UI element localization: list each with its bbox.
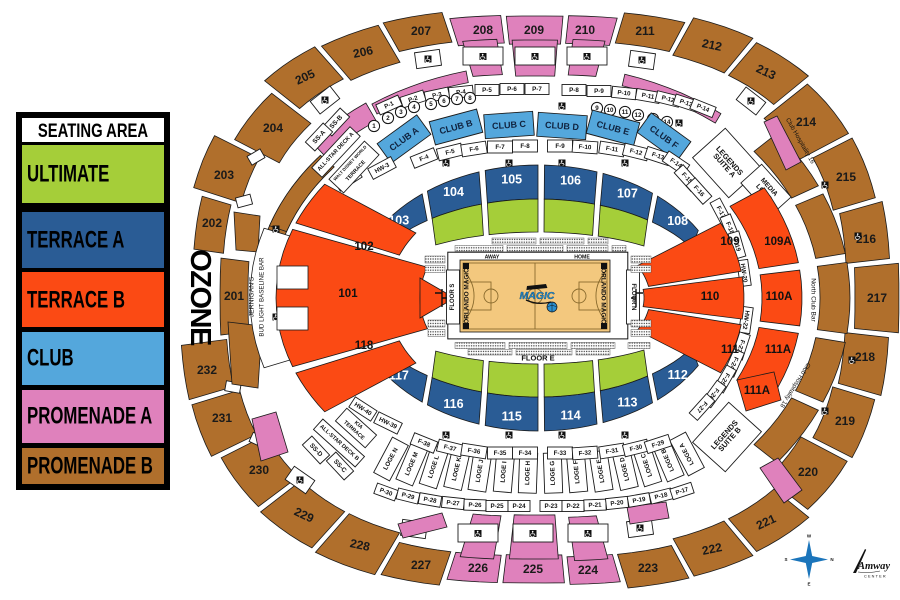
svg-text:TERRACE B: TERRACE B xyxy=(27,287,125,314)
svg-text:215: 215 xyxy=(836,170,856,184)
svg-text:P-8: P-8 xyxy=(569,87,579,94)
svg-text:F-35: F-35 xyxy=(494,450,507,457)
svg-text:F-9: F-9 xyxy=(555,143,565,150)
svg-text:HOME: HOME xyxy=(574,255,590,261)
svg-text:113: 113 xyxy=(617,395,637,409)
svg-text:MAGIC: MAGIC xyxy=(520,290,555,302)
svg-text:P-20: P-20 xyxy=(610,499,624,507)
svg-text:12: 12 xyxy=(635,112,642,119)
svg-text:108: 108 xyxy=(667,214,688,228)
svg-text:203: 203 xyxy=(214,168,234,182)
svg-text:202: 202 xyxy=(202,216,222,230)
svg-text:S: S xyxy=(784,557,787,562)
svg-text:207: 207 xyxy=(411,24,431,38)
svg-text:P-9: P-9 xyxy=(594,88,604,95)
svg-text:FLOOR N: FLOOR N xyxy=(630,284,636,311)
svg-text:109: 109 xyxy=(720,236,739,248)
svg-text:F-8: F-8 xyxy=(520,143,530,150)
svg-text:North Club Bar: North Club Bar xyxy=(810,278,817,322)
svg-text:ULTIMATE: ULTIMATE xyxy=(27,161,109,188)
svg-text:104: 104 xyxy=(443,185,464,199)
svg-text:115: 115 xyxy=(502,409,522,423)
svg-text:224: 224 xyxy=(578,563,598,577)
svg-text:ORLANDO MAGIC: ORLANDO MAGIC xyxy=(600,268,607,324)
svg-text:7: 7 xyxy=(455,96,459,103)
svg-text:6: 6 xyxy=(442,98,446,105)
svg-text:109A: 109A xyxy=(764,236,792,248)
svg-text:227: 227 xyxy=(411,558,431,572)
svg-text:P-22: P-22 xyxy=(566,503,580,510)
svg-text:3: 3 xyxy=(399,109,403,116)
svg-text:217: 217 xyxy=(867,291,887,305)
svg-text:P-6: P-6 xyxy=(507,86,517,93)
svg-text:F-7: F-7 xyxy=(495,144,505,151)
svg-text:209: 209 xyxy=(524,23,544,37)
svg-text:F-10: F-10 xyxy=(578,143,592,151)
svg-text:201: 201 xyxy=(224,289,244,303)
svg-text:CENTER: CENTER xyxy=(864,575,887,579)
svg-text:223: 223 xyxy=(638,561,658,575)
svg-text:ORLANDO MAGIC: ORLANDO MAGIC xyxy=(464,268,471,324)
svg-text:P-7: P-7 xyxy=(532,86,542,93)
svg-text:P-25: P-25 xyxy=(490,503,504,510)
svg-text:230: 230 xyxy=(249,463,269,477)
svg-text:214: 214 xyxy=(796,115,816,129)
svg-text:110: 110 xyxy=(701,291,720,303)
svg-text:110A: 110A xyxy=(766,291,793,303)
svg-text:P-27: P-27 xyxy=(446,499,460,507)
svg-text:P-23: P-23 xyxy=(544,503,558,510)
svg-text:LOGE G: LOGE G xyxy=(549,461,557,486)
svg-text:118: 118 xyxy=(355,340,374,352)
svg-text:225: 225 xyxy=(523,562,543,576)
svg-text:FLOOR S: FLOOR S xyxy=(450,284,456,311)
svg-text:LOGE H: LOGE H xyxy=(524,460,532,485)
svg-text:111: 111 xyxy=(721,344,740,356)
svg-text:CLUB: CLUB xyxy=(27,345,74,372)
svg-text:1: 1 xyxy=(372,123,376,130)
svg-text:219: 219 xyxy=(835,414,855,428)
svg-text:TERRACE A: TERRACE A xyxy=(27,227,124,254)
svg-text:2: 2 xyxy=(386,115,390,122)
svg-text:OZONE: OZONE xyxy=(184,249,216,346)
svg-text:106: 106 xyxy=(560,173,581,187)
svg-text:11: 11 xyxy=(622,109,629,116)
svg-text:Amway: Amway xyxy=(857,561,890,572)
svg-text:P-21: P-21 xyxy=(588,502,602,509)
svg-text:SEATING AREA: SEATING AREA xyxy=(38,120,148,141)
svg-text:P-26: P-26 xyxy=(468,502,482,509)
svg-text:F-34: F-34 xyxy=(519,450,532,457)
svg-text:208: 208 xyxy=(473,23,493,37)
svg-text:112: 112 xyxy=(668,368,688,382)
svg-text:P-5: P-5 xyxy=(482,87,492,94)
svg-text:220: 220 xyxy=(798,465,818,479)
svg-text:N: N xyxy=(830,557,833,562)
svg-text:102: 102 xyxy=(354,241,373,253)
svg-text:231: 231 xyxy=(212,411,232,425)
svg-text:111A: 111A xyxy=(744,385,770,397)
svg-text:8: 8 xyxy=(468,95,472,102)
svg-text:4: 4 xyxy=(412,104,416,111)
svg-text:10: 10 xyxy=(607,107,614,114)
svg-text:218: 218 xyxy=(855,350,875,364)
svg-text:F-33: F-33 xyxy=(554,450,567,457)
svg-text:211: 211 xyxy=(635,24,655,38)
svg-text:107: 107 xyxy=(617,187,638,201)
svg-text:PROMENADE A: PROMENADE A xyxy=(27,403,152,430)
svg-text:BUD LIGHT BASELINE BAR: BUD LIGHT BASELINE BAR xyxy=(259,257,266,337)
svg-text:226: 226 xyxy=(468,561,488,575)
svg-text:232: 232 xyxy=(197,363,217,377)
svg-text:F-32: F-32 xyxy=(578,449,592,457)
svg-text:204: 204 xyxy=(263,121,283,135)
svg-text:JERNIGAN’S: JERNIGAN’S xyxy=(249,276,256,317)
svg-text:210: 210 xyxy=(575,23,595,37)
svg-text:5: 5 xyxy=(429,101,433,108)
svg-text:E: E xyxy=(807,582,810,587)
svg-text:111A: 111A xyxy=(765,344,791,356)
svg-text:101: 101 xyxy=(338,288,358,300)
svg-text:AWAY: AWAY xyxy=(485,255,500,261)
svg-text:105: 105 xyxy=(501,173,522,187)
svg-text:114: 114 xyxy=(561,409,581,423)
svg-text:P-10: P-10 xyxy=(617,89,631,97)
svg-text:PROMENADE B: PROMENADE B xyxy=(27,453,153,480)
svg-text:P-24: P-24 xyxy=(512,503,526,510)
svg-text:116: 116 xyxy=(443,397,463,411)
